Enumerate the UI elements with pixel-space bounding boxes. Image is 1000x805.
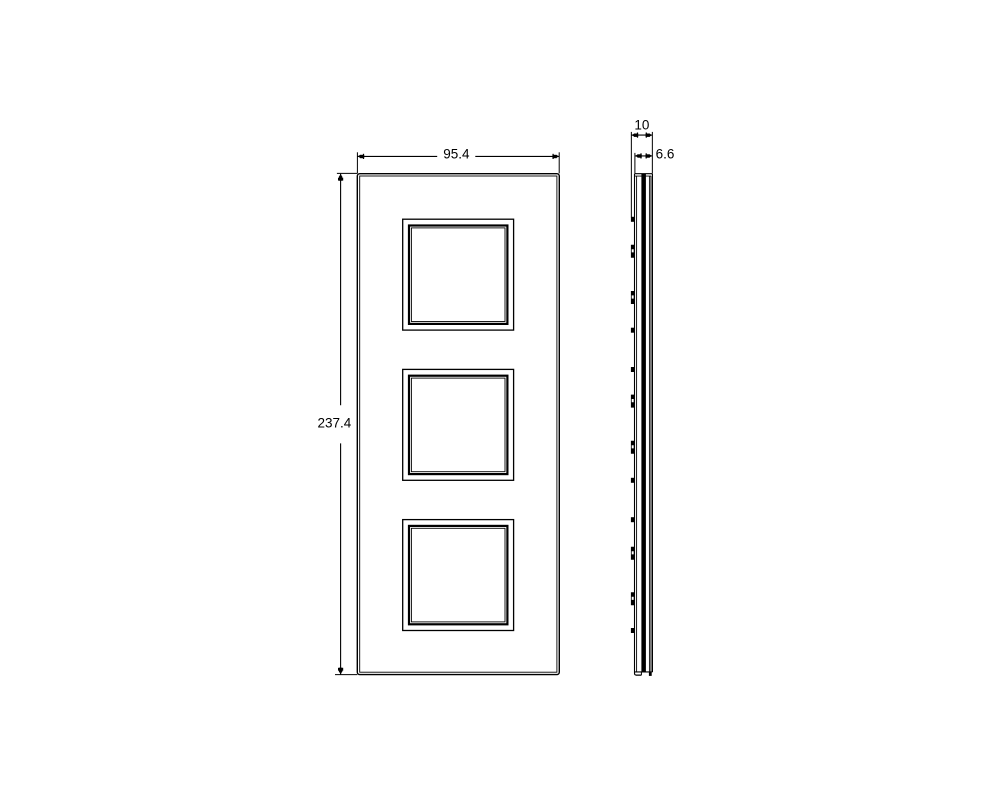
svg-text:6.6: 6.6 [656,147,675,162]
svg-text:237.4: 237.4 [318,416,352,431]
svg-text:95.4: 95.4 [443,146,470,161]
svg-text:10: 10 [634,118,649,133]
